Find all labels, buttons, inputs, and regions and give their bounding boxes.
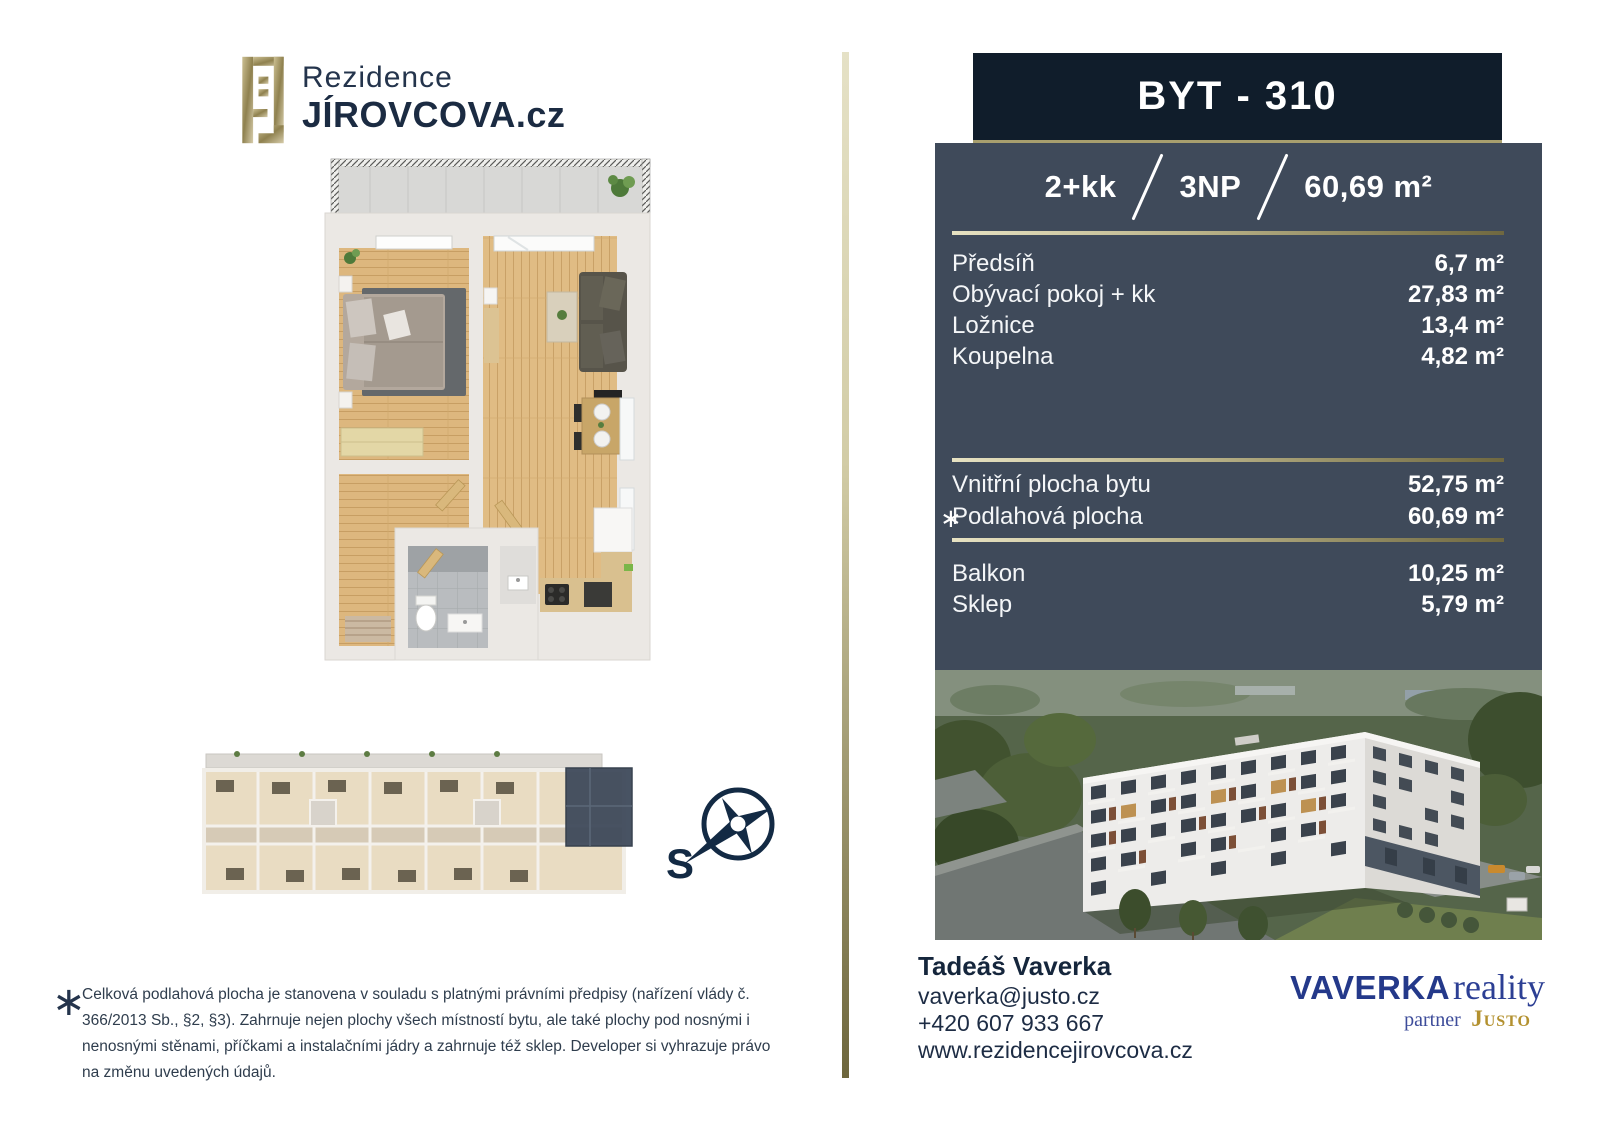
balcony-floor: [339, 167, 642, 213]
agent-website[interactable]: www.rezidencejirovcova.cz: [918, 1037, 1193, 1064]
bathroom: [395, 528, 538, 660]
partner-logo-sub-prefix: partner: [1404, 1009, 1461, 1031]
footnote-line: 366/2013 Sb., §2, §3). Zahrnuje nejen pl…: [82, 1008, 770, 1034]
brand-logo-icon: [240, 55, 286, 145]
summary-row: ∗Podlahová plocha60,69 m²: [952, 501, 1504, 533]
footnote-line: nenosnými stěnami, příčkami a instalační…: [82, 1034, 770, 1060]
unit-key-facts: 2+kk 3NP 60,69 m²: [935, 143, 1542, 231]
unit-title: BYT - 310: [1137, 74, 1337, 119]
agent-name: Tadeáš Vaverka: [918, 949, 1193, 983]
balcony-railing: [331, 159, 650, 167]
partner-logo-secondary: reality: [1453, 966, 1545, 1008]
summary-list: Vnitřní plocha bytu52,75 m² ∗Podlahová p…: [935, 462, 1542, 538]
partner-logo: VAVERKA reality partner Justo: [1245, 966, 1545, 1032]
unit-spec-panel: 2+kk 3NP 60,69 m² Předsíň6,7 m² Obývací …: [935, 143, 1542, 670]
footnote-line: Celková podlahová plocha je stanovena v …: [82, 982, 770, 1008]
room-list: Předsíň6,7 m² Obývací pokoj + kk27,83 m²…: [935, 235, 1542, 372]
room-row: Koupelna4,82 m²: [952, 341, 1504, 372]
floor-overview-plan: [192, 740, 642, 905]
floor-plan: [298, 148, 658, 668]
unit-total-area: 60,69 m²: [1304, 169, 1432, 205]
property-sheet: { "brand": { "line1": "Rezidence", "line…: [0, 0, 1600, 1131]
compass-icon: S: [650, 760, 790, 890]
brand-name-line2: JÍROVCOVA.cz: [302, 95, 565, 135]
footnote: ∗ Celková podlahová plocha je stanovena …: [52, 982, 770, 1086]
contact-block: Tadeáš Vaverka vaverka@justo.cz +420 607…: [918, 949, 1193, 1064]
unit-floor: 3NP: [1179, 169, 1241, 205]
highlighted-unit: [566, 768, 632, 846]
brand-name-line1: Rezidence: [302, 61, 565, 95]
room-row: Předsíň6,7 m²: [952, 248, 1504, 279]
building-photo: [935, 670, 1542, 940]
extra-row: Sklep5,79 m²: [952, 589, 1504, 620]
agent-phone[interactable]: +420 607 933 667: [918, 1010, 1193, 1037]
room-row: Obývací pokoj + kk27,83 m²: [952, 279, 1504, 310]
partner-logo-sub-brand: Justo: [1471, 1006, 1531, 1031]
extra-row: Balkon10,25 m²: [952, 558, 1504, 589]
slash-divider: [1132, 154, 1164, 221]
footnote-asterisk: ∗: [52, 982, 82, 1086]
partner-logo-primary: VAVERKA: [1290, 969, 1450, 1007]
compass-south-label: S: [666, 840, 694, 887]
slash-divider: [1257, 154, 1289, 221]
agent-email[interactable]: vaverka@justo.cz: [918, 983, 1193, 1010]
unit-header: BYT - 310: [973, 53, 1502, 143]
room-row: Ložnice13,4 m²: [952, 310, 1504, 341]
summary-row: Vnitřní plocha bytu52,75 m²: [952, 469, 1504, 501]
unit-disposition: 2+kk: [1045, 169, 1117, 205]
asterisk-marker: ∗: [940, 502, 962, 534]
brand-logo: Rezidence JÍROVCOVA.cz: [240, 55, 565, 145]
footnote-line: na změnu uvedených údajů.: [82, 1060, 770, 1086]
vertical-divider: [842, 52, 849, 1078]
extras-list: Balkon10,25 m² Sklep5,79 m²: [935, 542, 1542, 620]
sofa: [579, 272, 627, 372]
